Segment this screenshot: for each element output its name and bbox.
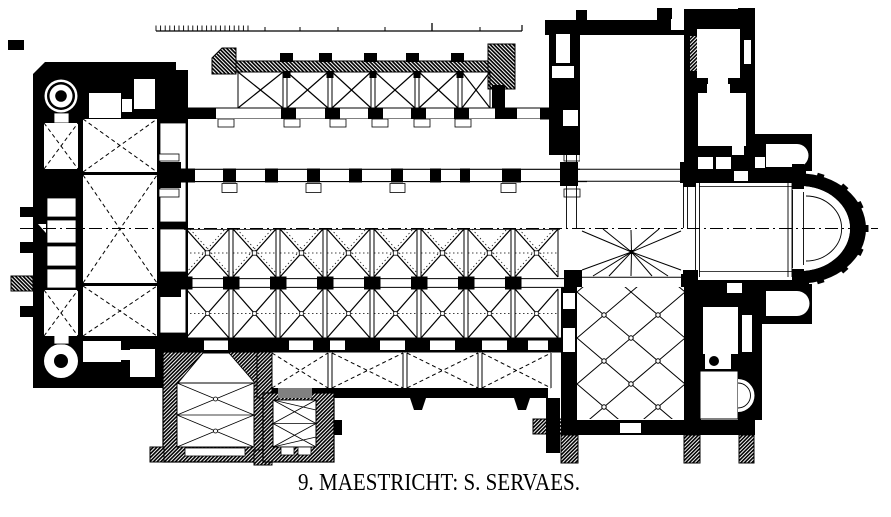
- svg-text:9. MAESTRICHT: S. SERVAES.: 9. MAESTRICHT: S. SERVAES.: [298, 470, 580, 496]
